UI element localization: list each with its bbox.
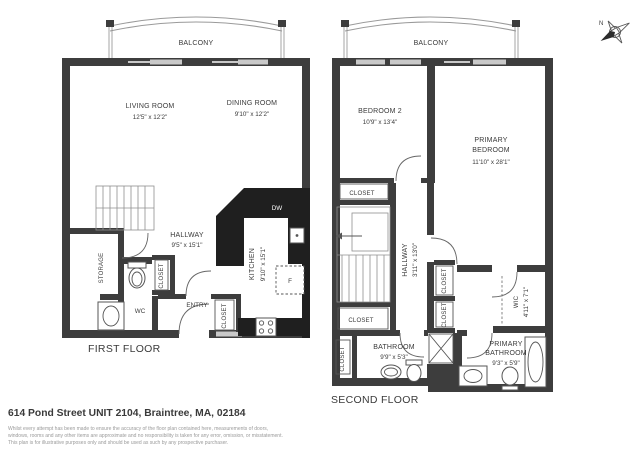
window bbox=[473, 60, 506, 65]
balcony-label-first: BALCONY bbox=[179, 40, 214, 47]
first-floor-balcony: BALCONY bbox=[106, 17, 286, 58]
wic-dims: 4'11" x 7'1" bbox=[523, 287, 530, 318]
second-floor-plan: BALCONY bbox=[331, 17, 553, 406]
left-closet-label: CLOSET bbox=[340, 346, 346, 371]
wic-label: WIC bbox=[514, 295, 520, 308]
bathroom-dims: 9'9" x 5'3" bbox=[380, 354, 408, 361]
bedroom2-label: BEDROOM 2 bbox=[358, 108, 402, 115]
living-room-label: LIVING ROOM bbox=[126, 103, 175, 110]
first-floor-title: FIRST FLOOR bbox=[88, 343, 161, 355]
balcony-label-second: BALCONY bbox=[414, 40, 449, 47]
primary-bathroom-label-2: BATHROOM bbox=[485, 350, 527, 357]
toilet-icon bbox=[128, 262, 146, 288]
second-floor-balcony: BALCONY bbox=[341, 17, 520, 58]
bathroom-toilet-icon bbox=[406, 360, 422, 382]
bathtub-icon bbox=[525, 337, 546, 387]
kitchen-label: KITCHEN bbox=[249, 248, 256, 280]
north-compass-icon: N bbox=[594, 12, 637, 52]
hallway-label-first: HALLWAY bbox=[170, 232, 204, 239]
disclaimer-line-1: Whilst every attempt has been made to en… bbox=[8, 426, 268, 432]
hall-closet-1-label: CLOSET bbox=[442, 268, 448, 293]
dining-room-label: DINING ROOM bbox=[227, 100, 277, 107]
floor-plan-page: BALCONY bbox=[0, 0, 640, 453]
primary-bedroom-label-2: BEDROOM bbox=[472, 147, 510, 154]
dining-room-dims: 9'10" x 12'2" bbox=[235, 111, 270, 118]
sink-icon bbox=[98, 302, 124, 330]
fridge-label: F bbox=[288, 278, 292, 285]
dishwasher-label: DW bbox=[272, 205, 283, 212]
staircase-first-floor bbox=[96, 186, 154, 230]
kitchen-dims: 9'10" x 15'1" bbox=[260, 247, 267, 282]
second-floor-title: SECOND FLOOR bbox=[331, 394, 419, 406]
primary-bathroom-dims: 9'3" x 5'9" bbox=[492, 360, 520, 367]
entry-label: ENTRY bbox=[186, 302, 208, 309]
disclaimer-line-3: This plan is for illustrative purposes o… bbox=[8, 440, 228, 446]
hall-closet-2-label: CLOSET bbox=[442, 302, 448, 327]
compass-north-label: N bbox=[599, 21, 604, 27]
footer: 614 Pond Street UNIT 2104, Braintree, MA… bbox=[8, 408, 283, 446]
mid-closet-label: CLOSET bbox=[348, 318, 373, 324]
address-text: 614 Pond Street UNIT 2104, Braintree, MA… bbox=[8, 408, 246, 419]
bedroom2-dims: 10'9" x 13'4" bbox=[363, 119, 398, 126]
disclaimer-line-2: windows, rooms and any other items are a… bbox=[8, 433, 283, 439]
floor-plan-svg: BALCONY bbox=[0, 0, 640, 453]
window bbox=[356, 60, 385, 65]
staircase-second-floor bbox=[336, 207, 390, 302]
entry-closet-label: CLOSET bbox=[222, 303, 228, 328]
hallway-dims-second: 3'11" x 13'0" bbox=[412, 243, 419, 277]
wc-label: WC bbox=[135, 308, 146, 315]
living-room-dims: 12'5" x 12'2" bbox=[133, 114, 168, 121]
storage-label: STORAGE bbox=[99, 253, 105, 284]
primary-bedroom-label-1: PRIMARY bbox=[474, 137, 507, 144]
window bbox=[390, 60, 421, 65]
primary-bathroom-label-1: PRIMARY bbox=[489, 341, 522, 348]
primary-bath-toilet-icon bbox=[502, 367, 518, 390]
laundry-box-icon bbox=[429, 334, 453, 363]
stove-icon bbox=[256, 318, 276, 336]
hallway-dims-first: 9'5" x 15'1" bbox=[171, 242, 202, 249]
window bbox=[150, 60, 182, 65]
hallway-label-second: HALLWAY bbox=[402, 243, 409, 277]
bathroom-label: BATHROOM bbox=[373, 344, 415, 351]
bathroom-sink-icon bbox=[381, 365, 401, 379]
primary-bath-sink-icon bbox=[459, 366, 487, 386]
primary-bedroom-dims: 11'10" x 28'1" bbox=[472, 159, 510, 166]
hall-closet-label: CLOSET bbox=[159, 263, 165, 288]
window bbox=[238, 60, 268, 65]
bedroom2-closet-label: CLOSET bbox=[349, 191, 374, 197]
first-floor-plan: BALCONY bbox=[62, 17, 310, 355]
